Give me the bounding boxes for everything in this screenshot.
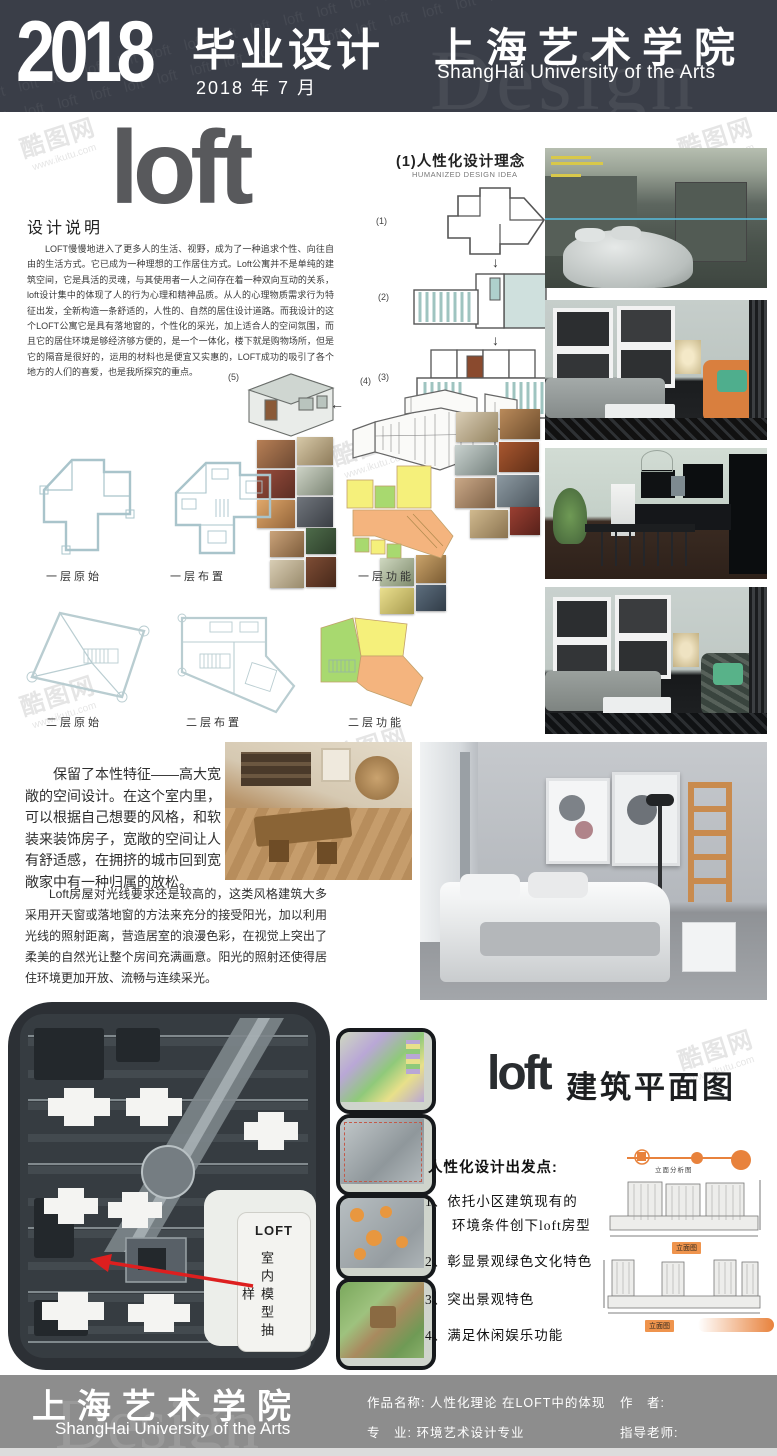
collage-photo	[455, 445, 497, 475]
render-lamp	[675, 340, 701, 374]
render-livingroom-orange	[545, 300, 767, 440]
corner-shelf	[355, 756, 399, 800]
render-bedroom-viewport	[545, 148, 767, 288]
wall-frame	[553, 308, 613, 350]
footer-author-label: 作 者:	[620, 1396, 665, 1410]
plan-1f-layout	[158, 455, 280, 561]
header-date: 2018 年 7 月	[196, 74, 317, 100]
render-kitchen	[545, 448, 767, 579]
principle-item-1: 1、依托小区建筑现有的	[425, 1190, 578, 1210]
footer-major-line: 专 业: 环境艺术设计专业	[367, 1422, 524, 1441]
principle-item-2: 2、彰显景观绿色文化特色	[425, 1250, 592, 1270]
loft-logo: loft	[110, 118, 248, 218]
node-circle	[354, 1248, 366, 1260]
viewport-stats-text	[551, 174, 581, 177]
render-stair-rail	[749, 587, 767, 734]
arrow-down-icon: ↓	[492, 332, 499, 348]
narrative-paragraph-1: 保留了本性特征——高大宽敞的空间设计。在这个室内里，可以根据自己想要的风格，和软…	[25, 764, 221, 893]
design-note-heading: 设计说明	[27, 214, 103, 238]
plan-1f-original	[28, 452, 140, 558]
kitchen-cabinet-upper	[683, 464, 723, 498]
collage-photo	[416, 585, 446, 611]
footer-work-label: 作品名称:	[367, 1396, 425, 1410]
render-rug-pattern	[545, 418, 767, 440]
collage-photo	[470, 510, 508, 538]
thumb-red-boundary	[344, 1122, 422, 1182]
collage-photo	[297, 497, 333, 527]
collage-photo	[499, 442, 539, 472]
node-circle	[366, 1230, 382, 1246]
wall-frame	[615, 595, 671, 637]
plan-1f-function	[345, 458, 457, 564]
kitchen-hood	[671, 476, 685, 496]
footer-advisor-label: 指导老师:	[620, 1426, 678, 1440]
photo-bedroom-main	[420, 742, 767, 1000]
poster-frame	[546, 778, 610, 864]
floor-lamp-head	[646, 794, 674, 806]
step-label-1: (1)	[376, 216, 387, 226]
bed-throw	[480, 922, 660, 956]
plan-label: 一层布置	[170, 568, 226, 584]
principle-item-1b: 环境条件创下loft房型	[452, 1214, 591, 1234]
step-label-4: (4)	[360, 376, 371, 386]
elevation-analysis-label: 立面分析图	[655, 1164, 693, 1174]
node-circle	[350, 1208, 364, 1222]
collage-photo	[497, 475, 539, 507]
header-school-en: ShangHai University of the Arts	[437, 62, 715, 84]
footer-school-en: ShangHai University of the Arts	[55, 1419, 290, 1439]
step-label-3: (3)	[378, 372, 389, 382]
collage-photo	[270, 560, 304, 588]
ikutu-watermark: 酷图网www.ikutu.com	[0, 102, 118, 180]
plan-label: 二层功能	[348, 714, 404, 730]
kitchen-plant	[553, 488, 587, 544]
kitchen-cabinet-upper	[641, 470, 675, 498]
wood-stool	[269, 840, 289, 862]
principle-item-3: 3、突出景观特色	[425, 1288, 534, 1308]
viewport-stats-text	[551, 162, 603, 165]
thumb-legend	[406, 1040, 420, 1074]
photo-wood-interior	[225, 742, 412, 880]
footer-bar: Design 上海艺术学院 ShangHai University of the…	[0, 1375, 777, 1448]
principles-heading: 人性化设计出发点:	[428, 1156, 558, 1177]
arrow-down-icon: ↓	[492, 254, 499, 270]
thumb-plan-grayscale	[336, 1114, 436, 1196]
footer-work-value: 人性化理论 在LOFT中的体现	[430, 1396, 605, 1410]
footer-author-line: 作 者:	[620, 1392, 665, 1411]
viewport-stats-text	[551, 156, 591, 159]
dining-table	[585, 524, 695, 532]
orange-swoosh-decoration	[698, 1318, 774, 1332]
elevation-label-2: 立面图	[645, 1320, 674, 1332]
thumb-building	[370, 1306, 396, 1328]
wall-cabinet	[241, 752, 311, 786]
wall-frame	[617, 306, 675, 346]
header-program-title: 毕业设计	[192, 14, 384, 78]
render-pillow-green	[713, 663, 743, 685]
footer-work-line: 作品名称: 人性化理论 在LOFT中的体现	[367, 1392, 605, 1411]
elevation-drawing-1	[604, 1176, 764, 1240]
collage-photo	[510, 507, 540, 535]
narrative-paragraph-2: Loft房屋对光线要求还是较高的，这类风格建筑大多采用开天窗或落地窗的方法来充分…	[25, 884, 327, 989]
bed-pillow	[528, 872, 588, 898]
thumb-masterplan-color	[336, 1028, 436, 1114]
poster-frame	[612, 772, 680, 866]
plan-label: 一层原始	[46, 568, 102, 584]
concept-title: (1)人性化设计理念	[396, 150, 525, 171]
collage-photo	[297, 467, 333, 495]
footer-bottom-strip	[0, 1448, 777, 1456]
render-lamp	[673, 633, 699, 667]
collage-photo	[456, 412, 498, 442]
node-circle	[380, 1206, 392, 1218]
thumb-plan-nodes	[336, 1194, 436, 1280]
collage-photo	[455, 478, 495, 508]
poster-art-circle	[559, 795, 585, 821]
arrow-left-icon: ←	[330, 396, 344, 412]
red-arrow	[88, 1248, 263, 1296]
viewport-guide-line	[545, 218, 767, 220]
kitchen-cabinet-tall	[729, 454, 767, 574]
step-label-2: (2)	[378, 292, 389, 302]
plan-label: 二层原始	[46, 714, 102, 730]
massing-diagram-1	[440, 186, 548, 258]
node-circle	[396, 1236, 408, 1248]
render-pillow	[611, 226, 641, 240]
section-loft-logo: loft	[487, 1046, 550, 1101]
render-rug-pattern	[545, 713, 767, 734]
wall-frame	[321, 748, 351, 782]
plan-2f-layout	[170, 608, 298, 718]
dining-chairs	[589, 532, 689, 566]
chandelier	[641, 450, 673, 472]
footer-advisor-line: 指导老师:	[620, 1422, 678, 1441]
header-year: 2018	[16, 0, 150, 104]
thumb-landscape-plan	[336, 1278, 436, 1370]
plan-label: 二层布置	[186, 714, 242, 730]
section-title: 建筑平面图	[566, 1062, 736, 1107]
collage-photo	[306, 528, 336, 554]
step-label-5: (5)	[228, 372, 239, 382]
ladder-shelf	[688, 782, 732, 902]
bed-pillow	[460, 874, 520, 900]
render-pillow	[575, 228, 605, 242]
elevation-drawing-2	[602, 1256, 764, 1316]
plan-label: 一层功能	[358, 568, 414, 584]
nightstand	[682, 922, 736, 972]
collage-photo	[297, 437, 333, 465]
plan-2f-function	[315, 612, 427, 710]
plan-2f-original	[22, 605, 152, 707]
header-bar: loft loft loft loft loft loft loft loft …	[0, 0, 777, 112]
massing-diagram-2	[412, 272, 548, 332]
principle-item-4: 4、满足休闲娱乐功能	[425, 1324, 563, 1344]
collage-photo	[380, 588, 414, 614]
concept-subtitle: HUMANIZED DESIGN IDEA	[412, 170, 518, 179]
wood-stool	[317, 842, 337, 864]
poster-art-circle	[575, 821, 593, 839]
footer-major-label: 专 业:	[367, 1426, 412, 1440]
model-house-3d	[243, 360, 338, 438]
elevation-label-1: 立面图	[672, 1242, 701, 1254]
render-pillow-teal	[717, 370, 747, 392]
wall-frame	[553, 597, 611, 641]
render-livingroom-green	[545, 587, 767, 734]
collage-photo	[500, 409, 540, 439]
collage-photo	[306, 557, 336, 587]
footer-major-value: 环境艺术设计专业	[416, 1426, 524, 1440]
poster-page: loft loft loft loft loft loft loft loft …	[0, 0, 777, 1456]
callout-title: LOFT	[238, 1223, 310, 1238]
